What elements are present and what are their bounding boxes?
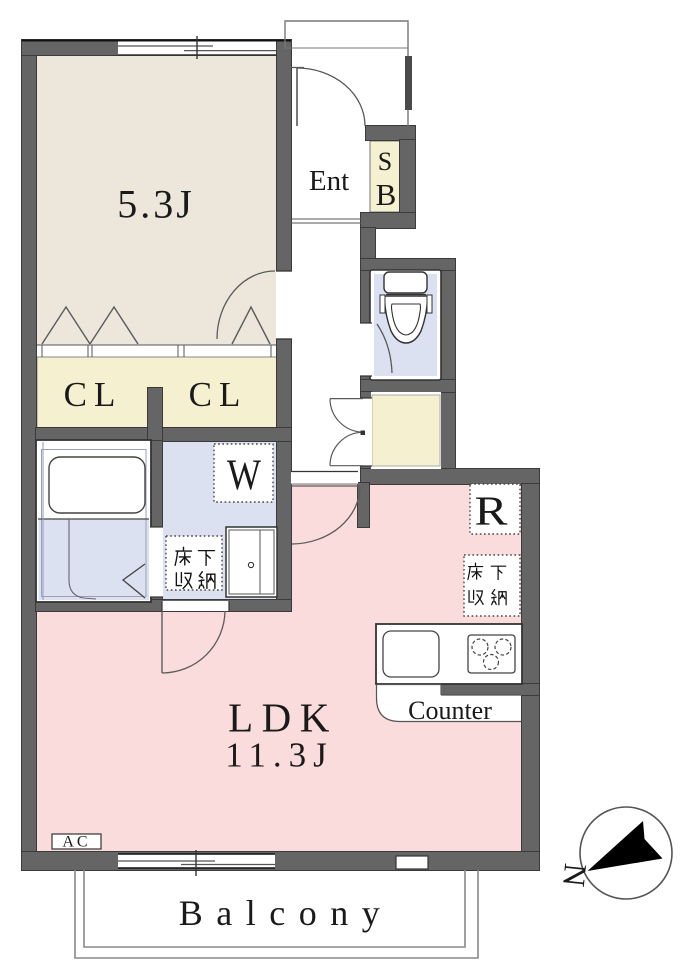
svg-text:N: N [556, 862, 594, 889]
svg-text:B: B [376, 177, 397, 212]
svg-text:S: S [378, 147, 392, 176]
svg-text:Counter: Counter [408, 696, 492, 725]
svg-text:Balcony: Balcony [179, 893, 393, 933]
svg-text:5.3J: 5.3J [117, 182, 195, 227]
svg-text:CL: CL [189, 375, 248, 414]
svg-text:R: R [475, 488, 509, 534]
svg-text:W: W [227, 452, 261, 499]
svg-text:Ent: Ent [309, 165, 349, 197]
svg-text:11.3J: 11.3J [225, 736, 334, 775]
svg-text:AC: AC [62, 834, 90, 851]
svg-text:LDK: LDK [228, 695, 338, 741]
svg-text:CL: CL [64, 375, 123, 414]
